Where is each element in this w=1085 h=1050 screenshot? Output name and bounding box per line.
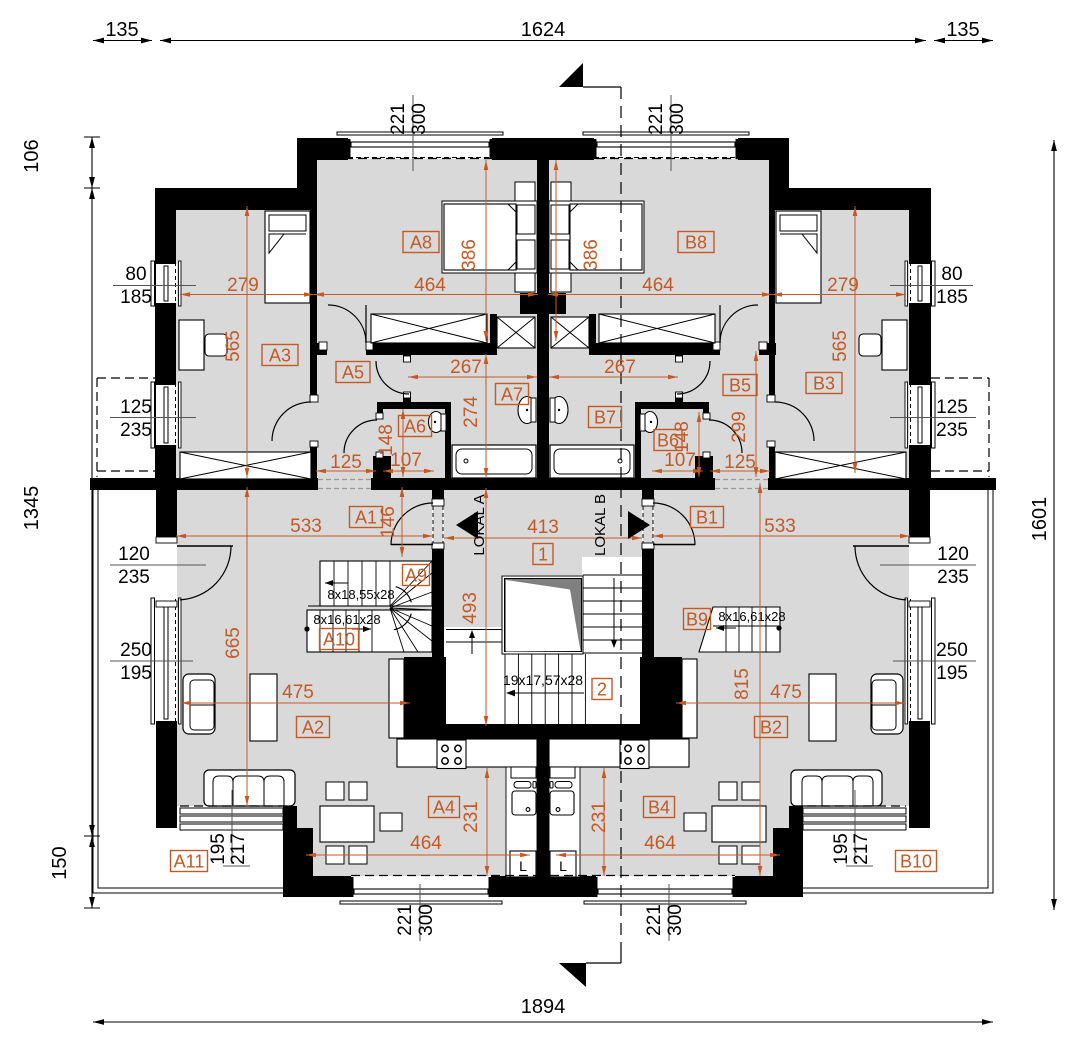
svg-text:221: 221 — [646, 103, 667, 135]
svg-text:A9: A9 — [405, 566, 427, 586]
svg-text:80: 80 — [941, 264, 962, 285]
svg-text:300: 300 — [667, 103, 688, 135]
svg-text:B6: B6 — [657, 431, 679, 451]
svg-text:B7: B7 — [594, 408, 616, 428]
svg-text:106: 106 — [21, 139, 43, 172]
svg-text:565: 565 — [830, 330, 851, 362]
svg-text:235: 235 — [937, 567, 969, 588]
svg-text:1624: 1624 — [521, 19, 566, 41]
svg-text:A7: A7 — [501, 385, 523, 405]
svg-text:A3: A3 — [269, 346, 291, 366]
svg-text:2: 2 — [597, 680, 607, 700]
svg-text:493: 493 — [460, 592, 481, 624]
svg-text:107: 107 — [390, 450, 422, 471]
svg-text:185: 185 — [120, 287, 152, 308]
svg-text:274: 274 — [461, 396, 482, 428]
svg-text:A6: A6 — [404, 417, 426, 437]
svg-text:120: 120 — [118, 544, 150, 565]
svg-text:815: 815 — [732, 668, 753, 700]
svg-text:464: 464 — [414, 275, 446, 296]
svg-text:19x17,57x28: 19x17,57x28 — [503, 672, 583, 688]
svg-text:221: 221 — [395, 904, 416, 936]
svg-text:A11: A11 — [174, 852, 205, 872]
svg-text:565: 565 — [223, 330, 244, 362]
svg-text:8x18,55x28: 8x18,55x28 — [327, 587, 394, 602]
svg-text:300: 300 — [416, 904, 437, 936]
svg-text:299: 299 — [729, 411, 750, 443]
svg-text:533: 533 — [290, 516, 322, 537]
svg-text:195: 195 — [208, 833, 229, 865]
svg-text:533: 533 — [764, 516, 796, 537]
svg-text:A8: A8 — [410, 233, 432, 253]
svg-text:125: 125 — [120, 397, 152, 418]
svg-text:125: 125 — [724, 452, 756, 473]
svg-text:LOKAL B: LOKAL B — [592, 494, 609, 556]
svg-text:8x16,61x28: 8x16,61x28 — [313, 612, 380, 627]
svg-text:1: 1 — [538, 545, 548, 565]
svg-text:475: 475 — [770, 682, 802, 703]
svg-text:B8: B8 — [685, 233, 707, 253]
svg-text:B1: B1 — [696, 508, 718, 528]
svg-text:146: 146 — [378, 506, 399, 538]
svg-text:A4: A4 — [433, 798, 455, 818]
svg-text:464: 464 — [410, 833, 442, 854]
svg-text:217: 217 — [851, 833, 872, 865]
svg-text:235: 235 — [120, 420, 152, 441]
svg-text:B4: B4 — [648, 798, 670, 818]
svg-text:250: 250 — [120, 640, 152, 661]
svg-text:279: 279 — [227, 275, 259, 296]
svg-text:150: 150 — [49, 846, 71, 879]
svg-text:1345: 1345 — [21, 486, 43, 531]
svg-text:185: 185 — [936, 287, 968, 308]
svg-text:1894: 1894 — [521, 996, 566, 1018]
svg-text:A5: A5 — [342, 363, 364, 383]
svg-text:300: 300 — [409, 103, 430, 135]
svg-text:120: 120 — [937, 544, 969, 565]
svg-text:235: 235 — [118, 567, 150, 588]
svg-text:125: 125 — [330, 452, 362, 473]
svg-text:A1: A1 — [355, 508, 377, 528]
svg-text:267: 267 — [604, 357, 636, 378]
svg-text:267: 267 — [450, 357, 482, 378]
svg-text:464: 464 — [644, 833, 676, 854]
svg-text:L: L — [559, 858, 567, 874]
svg-text:107: 107 — [664, 450, 696, 471]
svg-text:B9: B9 — [686, 610, 708, 630]
svg-text:195: 195 — [936, 663, 968, 684]
svg-text:8x16,61x28: 8x16,61x28 — [718, 609, 785, 624]
svg-text:B2: B2 — [760, 718, 782, 738]
svg-text:L: L — [519, 858, 527, 874]
svg-text:665: 665 — [223, 627, 244, 659]
svg-text:386: 386 — [459, 239, 480, 271]
svg-text:B5: B5 — [729, 376, 751, 396]
svg-text:80: 80 — [125, 264, 146, 285]
svg-text:LOKAL A: LOKAL A — [471, 494, 488, 555]
svg-text:217: 217 — [228, 833, 249, 865]
svg-text:386: 386 — [581, 239, 602, 271]
svg-text:464: 464 — [642, 275, 674, 296]
svg-text:A2: A2 — [302, 718, 324, 738]
svg-text:250: 250 — [936, 640, 968, 661]
svg-text:300: 300 — [665, 904, 686, 936]
svg-text:221: 221 — [644, 904, 665, 936]
svg-text:231: 231 — [589, 801, 610, 833]
svg-text:125: 125 — [936, 397, 968, 418]
svg-text:1601: 1601 — [1029, 497, 1051, 542]
svg-text:221: 221 — [388, 103, 409, 135]
svg-text:279: 279 — [827, 275, 859, 296]
svg-text:B3: B3 — [813, 374, 835, 394]
svg-text:135: 135 — [946, 19, 979, 41]
svg-text:231: 231 — [461, 801, 482, 833]
svg-text:235: 235 — [936, 420, 968, 441]
svg-text:195: 195 — [831, 833, 852, 865]
svg-text:135: 135 — [105, 19, 138, 41]
svg-text:B10: B10 — [900, 852, 932, 872]
svg-text:A10: A10 — [323, 630, 355, 650]
svg-text:195: 195 — [120, 663, 152, 684]
svg-text:413: 413 — [527, 517, 559, 538]
svg-text:475: 475 — [282, 682, 314, 703]
